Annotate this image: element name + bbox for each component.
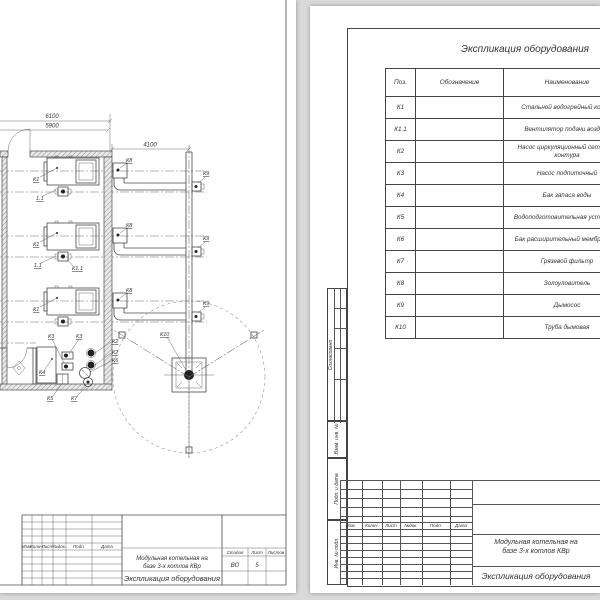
drawing-sheet-spec: Согласовано Взам. инв. № Подп. и дата Ин… [310, 6, 600, 593]
sheet-frame [0, 0, 286, 585]
tb-header-data: Дата [450, 523, 472, 528]
network-pumps [86, 348, 95, 369]
col-header-designation: Обозначение [416, 69, 504, 97]
cell-designation [416, 97, 504, 119]
boiler-plant-plan-svg: 6100 5900 4100 [0, 0, 296, 593]
cell-designation [416, 141, 504, 163]
water-treatment-unit [57, 374, 68, 384]
tb-header-podp: Подп. [73, 544, 85, 549]
tb-sheet-value: 5 [255, 563, 259, 569]
cell-name: Бак запаса воды [504, 185, 600, 207]
tb-project-title-line1: Модульная котельная на [494, 539, 578, 546]
label-k9: К9 [203, 171, 209, 177]
table-header-row: Поз. Обозначение Наименование [386, 69, 600, 97]
label-k6: К6 [112, 358, 119, 364]
title-block-left: Изм. Колич. Лист №док. Подп. Дата Модуль… [22, 515, 286, 593]
label-k3: К3 [76, 334, 83, 340]
table-row: К3Насос подпиточный [386, 163, 600, 185]
format-label: Формат [237, 592, 255, 593]
tb-header-izm: Изм. [340, 523, 362, 528]
table-row: К5Водоподготовительная установка [386, 207, 600, 229]
cell-name: Водоподготовительная установка [504, 207, 600, 229]
cell-pos: К1.1 [386, 119, 416, 141]
sanitary-symbol [13, 361, 25, 375]
flue-tract-3 [113, 293, 204, 321]
dim-6100-text: 6100 [45, 114, 59, 120]
col-header-name: Наименование [504, 69, 600, 97]
title-block-right: Изм. Колич. Лист №док. Подп. Дата Модуль… [340, 480, 600, 585]
tb-project-title: Модульная котельная на базе 3-х котлов К… [472, 538, 600, 556]
cell-pos: К4 [386, 185, 416, 207]
tb-header-data: Дата [100, 544, 113, 549]
label-k8: К8 [126, 223, 133, 229]
equipment-labels: К1 К1 К1 1.1 1.1 К1.1 К8 К8 К8 К9 К9 К9 … [33, 158, 209, 402]
stamp-agreed-label: Согласовано [328, 340, 334, 371]
dim-4100-text: 4100 [143, 143, 157, 149]
table-row: К4Бак запаса воды [386, 185, 600, 207]
table-row: К1Стальной водогрейный котел [386, 97, 600, 119]
label-fan-short: 1.1 [36, 196, 44, 202]
boiler-unit-3 [44, 286, 99, 326]
label-k4: К4 [39, 370, 45, 376]
label-k1: К1 [33, 242, 39, 248]
label-k8: К8 [126, 158, 133, 164]
cell-pos: К6 [386, 229, 416, 251]
cell-designation [416, 251, 504, 273]
tb-doc-title: Экспликация оборудования [124, 574, 220, 583]
equipment-room [37, 347, 96, 387]
cell-pos: К5 [386, 207, 416, 229]
label-k2: К2 [112, 339, 118, 345]
label-k3: К3 [48, 334, 55, 340]
tb-project-title-line1: Модульная котельная на [136, 556, 208, 562]
cell-designation [416, 163, 504, 185]
stamp-box-agreed: Согласовано [327, 288, 347, 422]
tb-header-list: Лист [41, 544, 54, 549]
tb-stage-value: ВО [231, 563, 240, 569]
label-k9: К9 [203, 236, 209, 242]
label-k5: К5 [47, 396, 54, 402]
col-header-pos: Поз. [386, 69, 416, 97]
tb-project-title-line2: базе 3-х котлов КВр [143, 564, 201, 570]
cell-pos: К10 [386, 317, 416, 339]
cell-name: Грязевой фильтр [504, 251, 600, 273]
table-row: К2Насос циркуляционный сетевого контура [386, 141, 600, 163]
table-row: К8Золоуловитель [386, 273, 600, 295]
expansion-tank [80, 368, 91, 379]
cell-name: Вентилятор подачи воздуха [504, 119, 600, 141]
cell-designation [416, 119, 504, 141]
table-row: К9Дымосос [386, 295, 600, 317]
cell-designation [416, 317, 504, 339]
table-row: К6Бак расширительный мембранный [386, 229, 600, 251]
label-k10: К10 [160, 332, 170, 338]
entrance-door [8, 129, 30, 151]
table-row: К1.1Вентилятор подачи воздуха [386, 119, 600, 141]
flue-tract-1 [113, 163, 204, 191]
tb-header-kol: Колич. [362, 523, 382, 528]
cell-pos: К3 [386, 163, 416, 185]
axis-lines [0, 145, 207, 460]
dim-5900-text: 5900 [45, 124, 59, 130]
dimension-6100: 6100 [0, 114, 112, 151]
label-k2: К2 [112, 350, 118, 356]
format-value: А3 [264, 592, 271, 593]
drawing-sheet-plan: 6100 5900 4100 [0, 0, 296, 593]
stamp-box-vzam: Взам. инв. № [327, 420, 347, 458]
cell-designation [416, 229, 504, 251]
tb-header-ndok: №док. [400, 523, 422, 528]
cell-designation [416, 273, 504, 295]
cell-name: Насос циркуляционный сетевого контура [504, 141, 600, 163]
cell-name: Насос подпиточный [504, 163, 600, 185]
cell-name: Стальной водогрейный котел [504, 97, 600, 119]
dimension-5900: 5900 [0, 124, 110, 133]
cell-designation [416, 207, 504, 229]
cell-pos: К2 [386, 141, 416, 163]
tb-sheet-label: Лист [250, 550, 263, 555]
label-k8: К8 [126, 288, 133, 294]
cell-name: Труба дымовая [504, 317, 600, 339]
leader-lines [40, 163, 205, 396]
tb-header-podp: Подп. [422, 523, 450, 528]
equipment-spec-table: Поз. Обозначение Наименование К1Стальной… [385, 68, 600, 339]
tb-project-title-line2: базе 3-х котлов КВр [502, 548, 569, 555]
label-k1: К1 [33, 307, 39, 313]
tb-header-ndok: №док. [53, 544, 66, 549]
spec-table-title: Экспликация оборудования [385, 44, 600, 55]
tb-stage-label: Стадия [227, 550, 244, 555]
tb-header-list: Лист [382, 523, 400, 528]
label-k1-1: К1.1 [72, 266, 83, 272]
cell-pos: К9 [386, 295, 416, 317]
boiler-unit-1 [44, 156, 99, 196]
stamp-vzam-label: Взам. инв. № [334, 424, 340, 455]
boiler-unit-2 [44, 221, 99, 261]
cell-pos: К7 [386, 251, 416, 273]
label-k1: К1 [33, 177, 39, 183]
tb-sheets-label: Листов [267, 550, 285, 555]
feed-pumps [62, 352, 73, 370]
label-fan-short: 1.1 [34, 263, 42, 269]
table-row: К10Труба дымовая [386, 317, 600, 339]
dimension-4100: 4100 [110, 143, 191, 153]
cell-pos: К1 [386, 97, 416, 119]
label-k9: К9 [203, 301, 209, 307]
table-row: К7Грязевой фильтр [386, 251, 600, 273]
cell-designation [416, 185, 504, 207]
cell-designation [416, 295, 504, 317]
cell-name: Дымосос [504, 295, 600, 317]
cell-name: Золоуловитель [504, 273, 600, 295]
label-k7: К7 [71, 396, 78, 402]
cell-pos: К8 [386, 273, 416, 295]
flue-tract-2 [113, 228, 204, 256]
cell-name: Бак расширительный мембранный [504, 229, 600, 251]
tb-doc-title: Экспликация оборудования [472, 571, 600, 581]
